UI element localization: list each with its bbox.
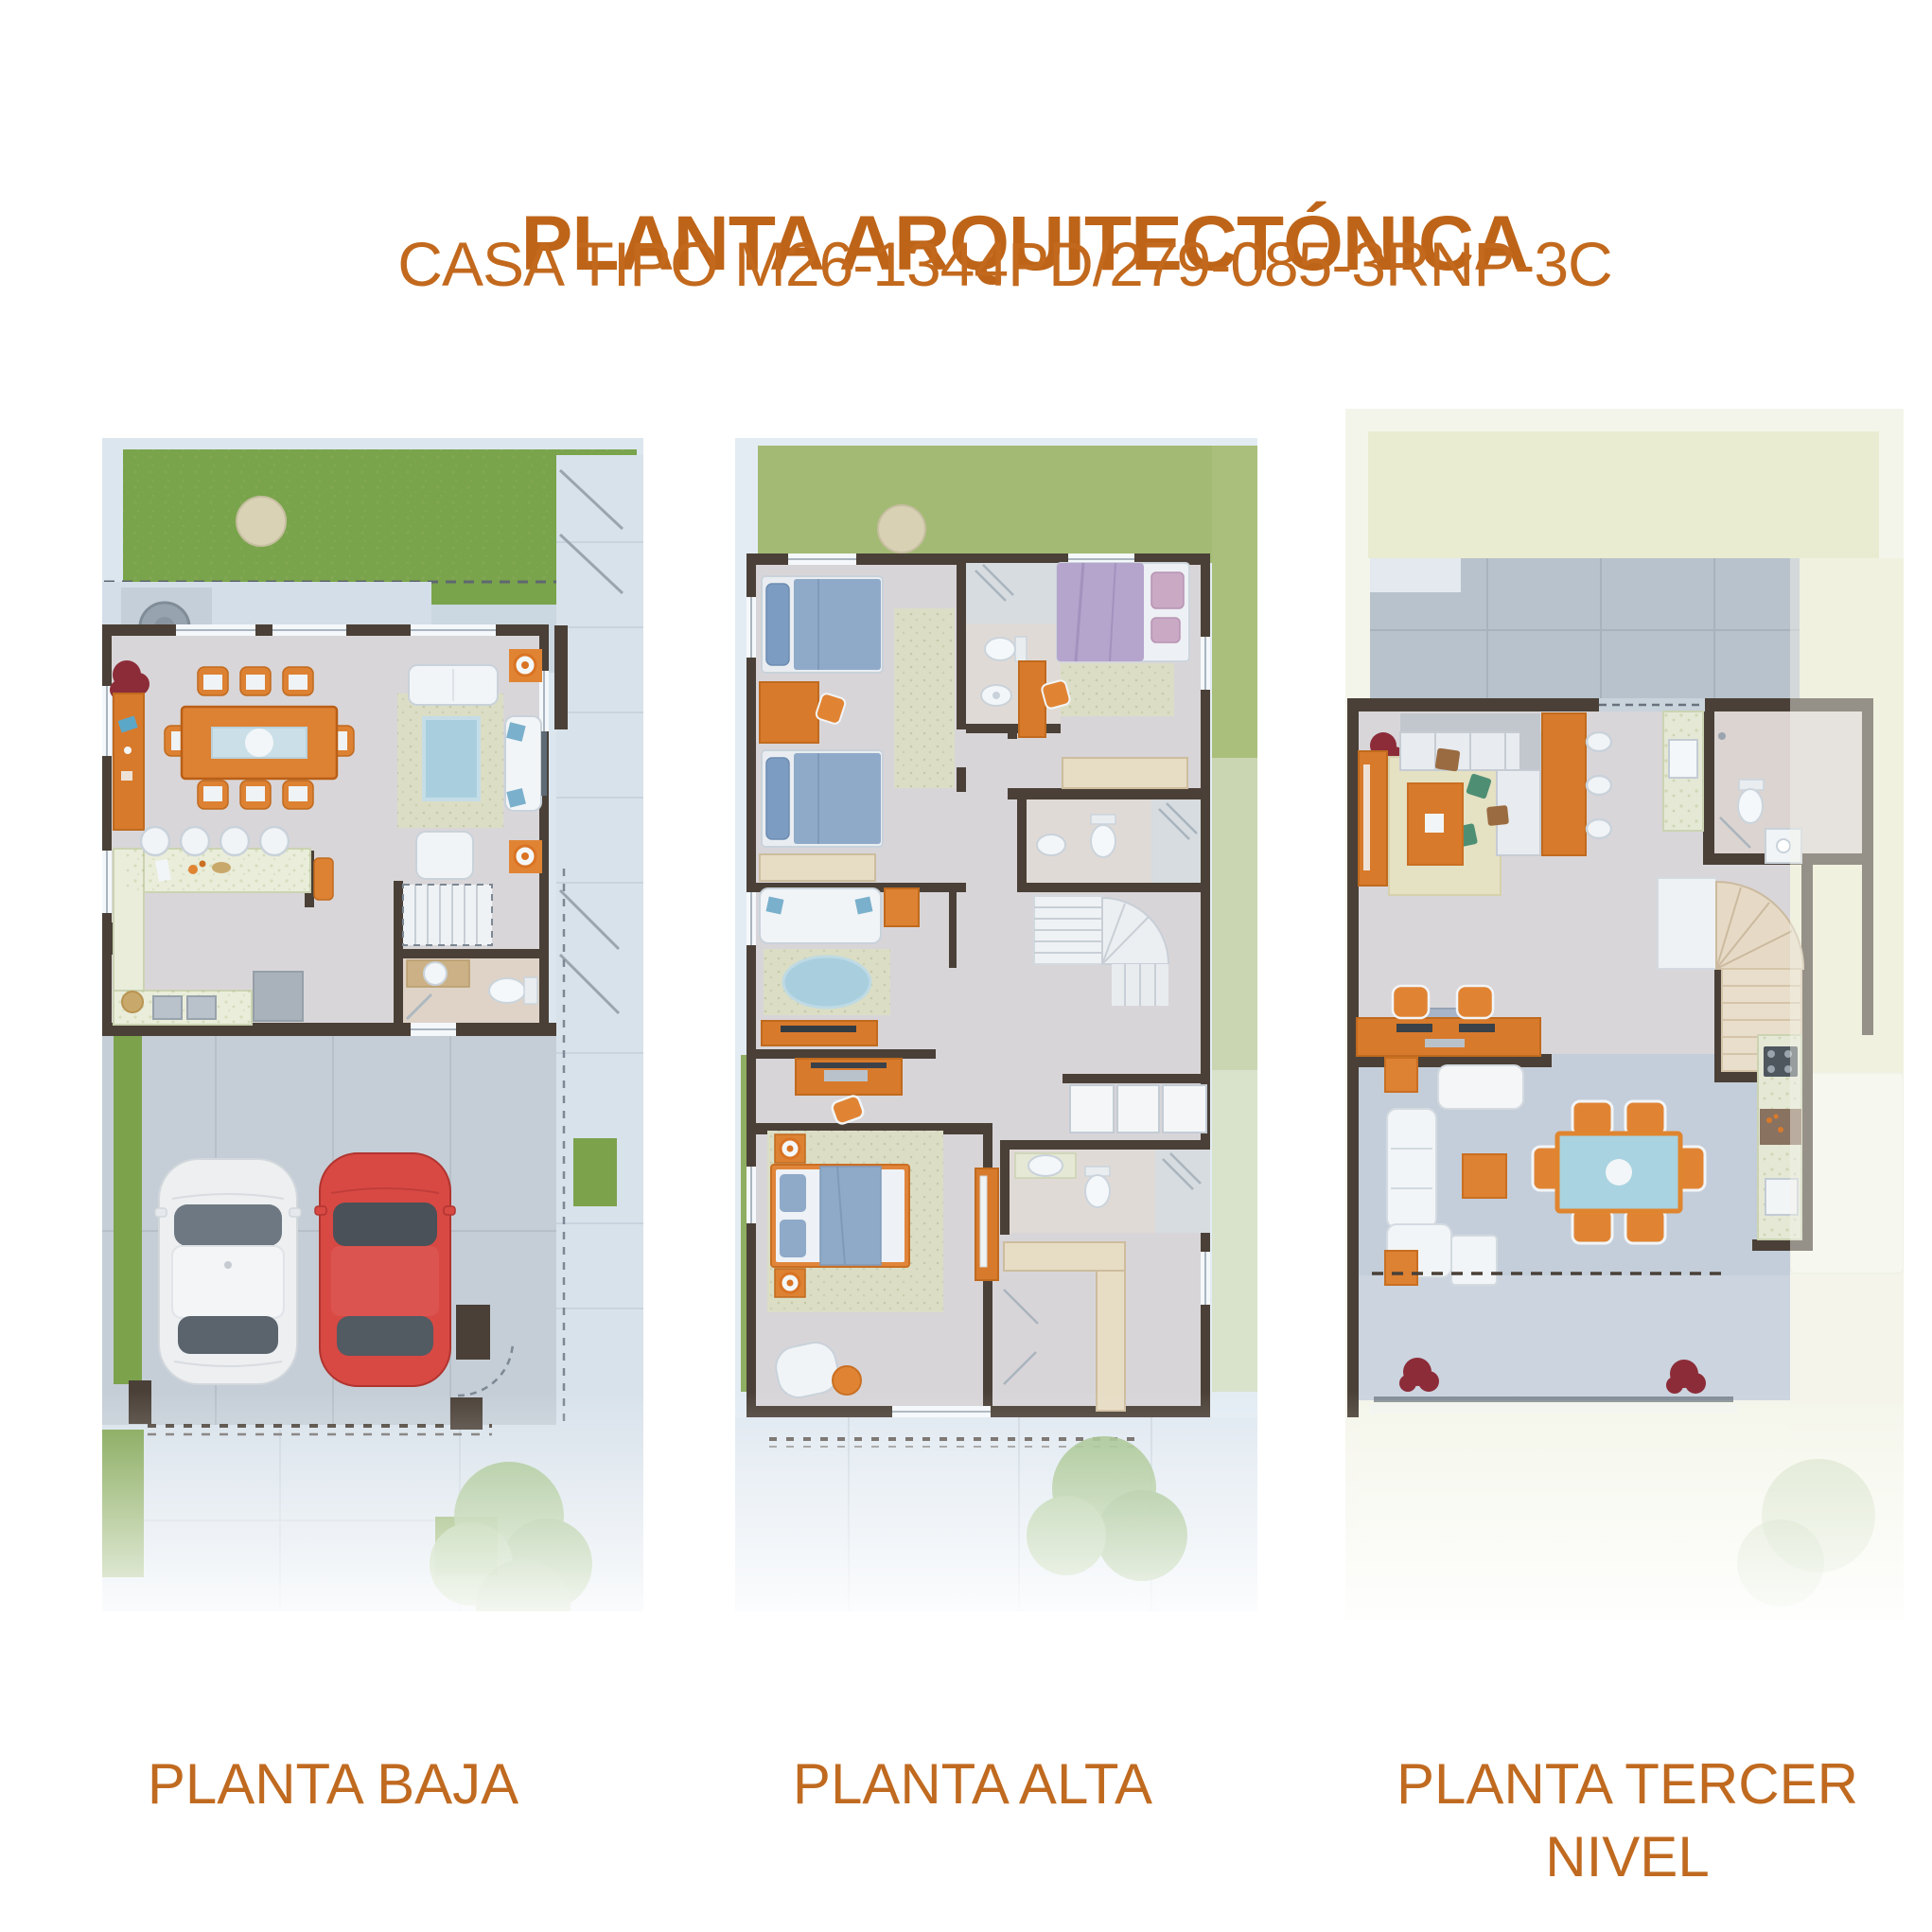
closet: [760, 854, 875, 881]
faded-lawn: [1368, 431, 1879, 558]
tree-icon: [878, 505, 925, 553]
toilet-icon: [1738, 789, 1763, 823]
roof-slab: [1370, 558, 1800, 702]
media-console: [762, 1021, 877, 1045]
side-table: [885, 888, 919, 926]
lounge-sofa: [1387, 1109, 1436, 1228]
sink-icon: [1669, 740, 1697, 778]
page: PLANTA ARQUITECTÓNICA CASA TIPO M26-1344…: [0, 0, 1932, 1932]
plan-label-planta-baja: PLANTA BAJA: [87, 1748, 579, 1821]
page-subtitle: CASA TIPO M26-1344PD/279-085-3RNP-3C: [397, 233, 1611, 295]
washbasin-icon: [1037, 834, 1065, 855]
side-table: [1385, 1058, 1417, 1092]
washbasin-icon: [1777, 839, 1790, 852]
car-white: [155, 1159, 301, 1384]
sideboard: [114, 694, 144, 830]
twin-bed: [762, 576, 883, 673]
desk: [1019, 661, 1045, 737]
toilet-icon: [489, 978, 525, 1003]
twin-bed: [762, 750, 883, 847]
car-red: [315, 1153, 455, 1386]
floor-plan-planta-alta: [735, 438, 1257, 1611]
desk: [760, 682, 818, 743]
floor-plan-planta-baja: [102, 438, 643, 1611]
sofa: [760, 888, 881, 943]
chair: [1393, 986, 1429, 1018]
bathroom-3: [1010, 1150, 1210, 1233]
toilet-icon: [1085, 1175, 1110, 1207]
tv-icon: [541, 731, 547, 796]
chair: [1457, 986, 1493, 1018]
washbasin-icon: [424, 962, 447, 985]
toilet-icon: [985, 638, 1015, 660]
side-walkway: [554, 455, 643, 1425]
plan-label-planta-alta: PLANTA ALTA: [727, 1748, 1219, 1821]
tv-icon: [781, 1026, 856, 1032]
tree-icon: [237, 497, 286, 546]
side-table: [1385, 1251, 1417, 1285]
sectional-sofa: [1400, 713, 1540, 734]
half-bathroom: [403, 958, 539, 1023]
bathroom-2: [1027, 799, 1201, 883]
closet-row: [1070, 1085, 1206, 1133]
credenza: [1063, 758, 1187, 788]
master-bed: [771, 1165, 909, 1267]
sideboard: [1359, 751, 1387, 886]
daybed: [1438, 1065, 1523, 1109]
floor-plan-planta-tercer-nivel: [1345, 409, 1904, 1620]
side-table: [1463, 1154, 1506, 1198]
terrace-railing: [1374, 1396, 1733, 1402]
toilet-icon: [1091, 825, 1115, 857]
plan-label-planta-tercer-nivel: PLANTA TERCER NIVEL: [1381, 1748, 1873, 1894]
purple-bed: [1057, 563, 1189, 661]
ottoman: [833, 1366, 861, 1395]
washbasin-icon: [1028, 1155, 1063, 1176]
staircase: [403, 885, 492, 945]
bar-stools: [1587, 732, 1611, 838]
refrigerator-icon: [254, 972, 303, 1021]
armchair: [416, 832, 473, 879]
coffee-table: [1451, 1236, 1497, 1285]
